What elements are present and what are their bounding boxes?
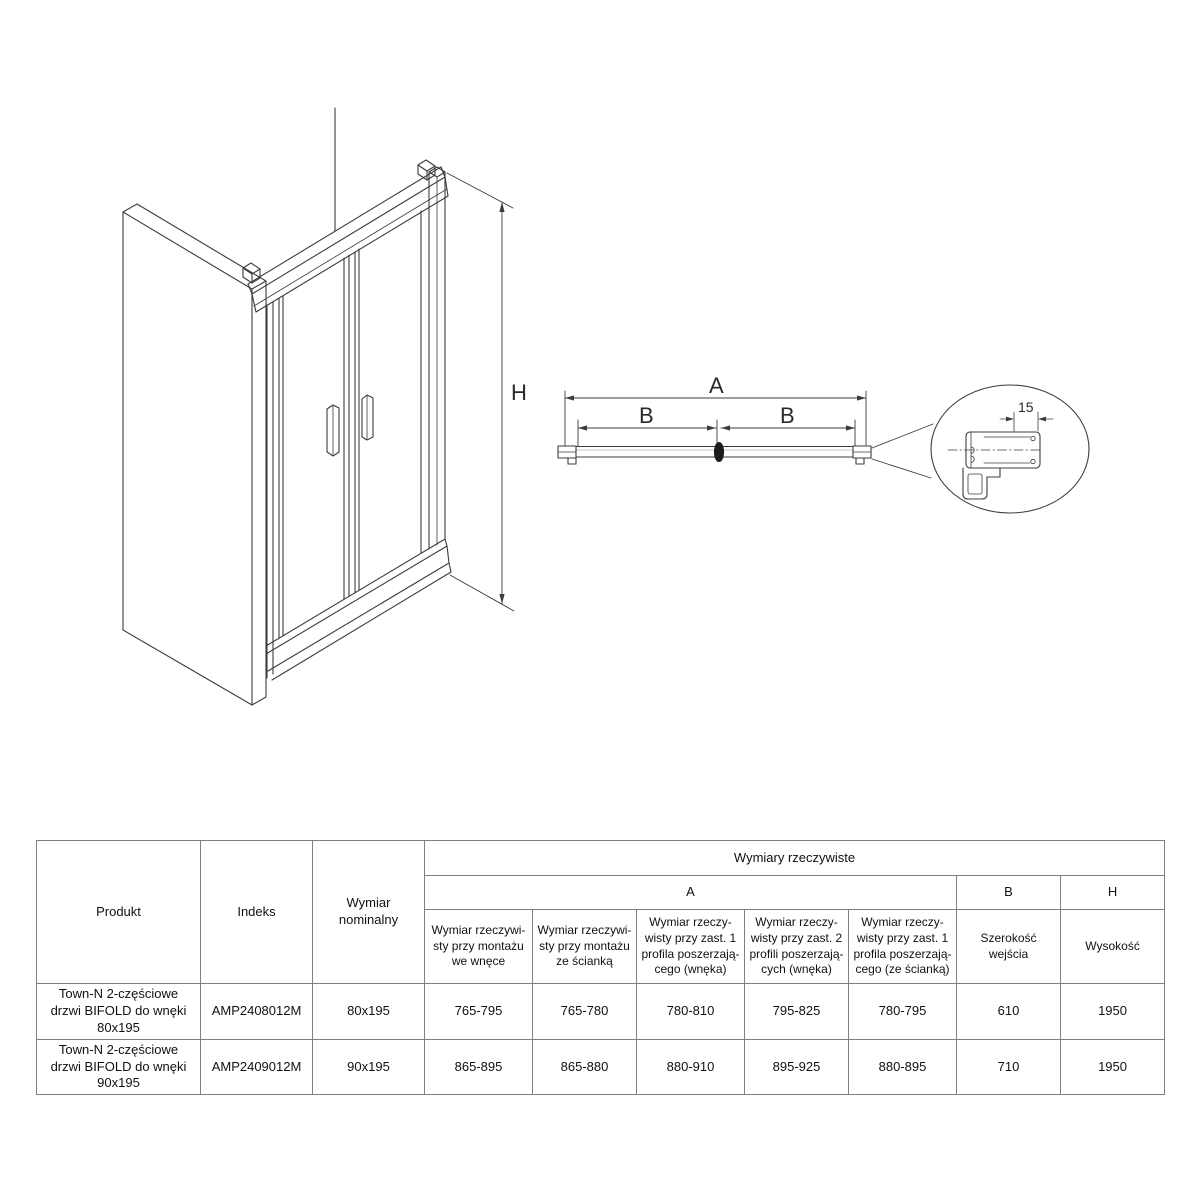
- col-header-h: H: [1061, 876, 1165, 910]
- col-subheader-a4: Wymiar rzeczy- wisty przy zast. 2 profil…: [745, 910, 849, 984]
- header-row-group: Produkt Indeks Wymiar nominalny Wymiary …: [37, 841, 1165, 876]
- col-header-produkt: Produkt: [37, 841, 201, 984]
- col-header-b: B: [957, 876, 1061, 910]
- wall-profile-left: [558, 446, 576, 464]
- callout-line-bottom: [872, 459, 931, 478]
- index-cell: AMP2408012M: [201, 984, 313, 1040]
- value-cell: 765-780: [533, 984, 637, 1040]
- right-frame-profile: [429, 167, 445, 549]
- value-cell: 1950: [1061, 984, 1165, 1040]
- col-header-wymiar-nominalny: Wymiar nominalny: [313, 841, 425, 984]
- value-cell: 880-895: [849, 1039, 957, 1095]
- detail-callout: 15: [872, 385, 1089, 513]
- door-handle-right: [362, 395, 373, 440]
- wall-bracket-left: [243, 263, 260, 283]
- value-cell: 865-895: [425, 1039, 533, 1095]
- isometric-shower-door-drawing: H: [123, 108, 527, 705]
- arrow-down-icon: [499, 594, 504, 604]
- center-hinge: [715, 443, 724, 462]
- technical-drawings: H: [0, 0, 1200, 830]
- width-total-dimension: [565, 391, 866, 446]
- product-spec-sheet: H: [0, 0, 1200, 1200]
- table-row: Town-N 2-częściowe drzwi BIFOLD do wnęki…: [37, 1039, 1165, 1095]
- col-header-wymiary-rzeczywiste: Wymiary rzeczywiste: [425, 841, 1165, 876]
- value-cell: 710: [957, 1039, 1061, 1095]
- callout-circle: [931, 385, 1089, 513]
- callout-line-top: [872, 424, 933, 448]
- left-frame-profile: [267, 302, 273, 678]
- col-subheader-h: Wysokość: [1061, 910, 1165, 984]
- value-cell: 895-925: [745, 1039, 849, 1095]
- arrow-left-icon: [578, 425, 587, 430]
- col-header-a: A: [425, 876, 957, 910]
- width-total-label: A: [709, 373, 724, 398]
- width-right-label: B: [780, 403, 795, 428]
- width-half-dimensions: [578, 420, 855, 446]
- col-subheader-a2: Wymiar rzeczywi- sty przy montażu ze ści…: [533, 910, 637, 984]
- col-header-indeks: Indeks: [201, 841, 313, 984]
- value-cell: 780-795: [849, 984, 957, 1040]
- col-subheader-a5: Wymiar rzeczy- wisty przy zast. 1 profil…: [849, 910, 957, 984]
- arrow-right-icon: [1006, 417, 1014, 422]
- height-dimension: [447, 173, 514, 611]
- height-dimension-label: H: [511, 380, 527, 405]
- plan-view-drawing: A B B: [558, 373, 871, 464]
- nominal-size-cell: 80x195: [313, 984, 425, 1040]
- value-cell: 865-880: [533, 1039, 637, 1095]
- product-name-cell: Town-N 2-częściowe drzwi BIFOLD do wnęki…: [37, 1039, 201, 1095]
- detail-dimension-label: 15: [1018, 399, 1034, 415]
- index-cell: AMP2409012M: [201, 1039, 313, 1095]
- door-handle-left: [327, 405, 339, 456]
- arrow-right-icon: [857, 395, 866, 400]
- arrow-right-icon: [707, 425, 716, 430]
- profile-cross-section: [948, 432, 1042, 499]
- arrow-right-icon: [846, 425, 855, 430]
- arrow-left-icon: [721, 425, 730, 430]
- arrow-left-icon: [1038, 417, 1046, 422]
- col-subheader-a3: Wymiar rzeczy- wisty przy zast. 1 profil…: [637, 910, 745, 984]
- extension-line-bottom: [450, 575, 514, 611]
- top-rail-beam: [248, 167, 448, 312]
- value-cell: 795-825: [745, 984, 849, 1040]
- value-cell: 780-810: [637, 984, 745, 1040]
- arrow-left-icon: [565, 395, 574, 400]
- value-cell: 610: [957, 984, 1061, 1040]
- table-row: Town-N 2-częściowe drzwi BIFOLD do wnęki…: [37, 984, 1165, 1040]
- value-cell: 765-795: [425, 984, 533, 1040]
- width-left-label: B: [639, 403, 654, 428]
- value-cell: 880-910: [637, 1039, 745, 1095]
- product-name-cell: Town-N 2-częściowe drzwi BIFOLD do wnęki…: [37, 984, 201, 1040]
- nominal-size-cell: 90x195: [313, 1039, 425, 1095]
- wall-profile-right: [853, 446, 871, 464]
- side-wall-panel: [123, 204, 266, 705]
- spec-table-container: Produkt Indeks Wymiar nominalny Wymiary …: [36, 840, 1164, 1095]
- spec-table: Produkt Indeks Wymiar nominalny Wymiary …: [36, 840, 1165, 1095]
- col-subheader-b: Szerokość wejścia: [957, 910, 1061, 984]
- col-subheader-a1: Wymiar rzeczywi- sty przy montażu we wnę…: [425, 910, 533, 984]
- extension-line-top: [447, 173, 513, 208]
- value-cell: 1950: [1061, 1039, 1165, 1095]
